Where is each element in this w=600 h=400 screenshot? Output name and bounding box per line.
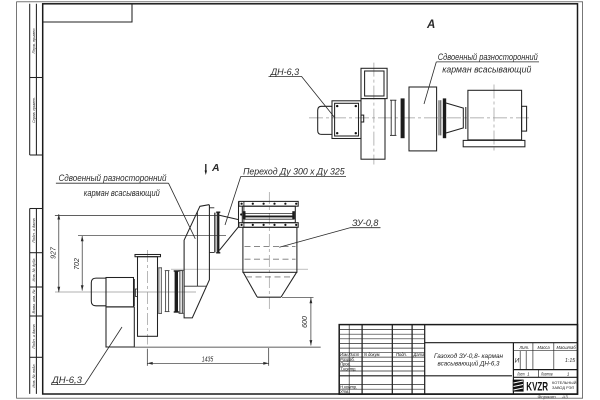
- svg-text:ДН-6,3: ДН-6,3: [270, 67, 299, 77]
- svg-text:Т.контр.: Т.контр.: [340, 366, 357, 371]
- svg-text:Лист: Лист: [516, 371, 525, 376]
- svg-text:Подп. и дата: Подп. и дата: [31, 323, 36, 348]
- svg-text:Подп. и дата: Подп. и дата: [31, 217, 36, 242]
- svg-text:Масштаб: Масштаб: [557, 345, 577, 350]
- svg-text:N докум.: N докум.: [364, 352, 381, 357]
- svg-text:А3: А3: [561, 394, 568, 399]
- svg-text:ЗУ-0,8: ЗУ-0,8: [352, 218, 378, 228]
- svg-text:1:15: 1:15: [565, 358, 575, 364]
- svg-text:1: 1: [567, 371, 569, 376]
- svg-text:А: А: [426, 19, 435, 31]
- svg-text:Подп.: Подп.: [396, 352, 407, 357]
- svg-text:Инв. № дубл.: Инв. № дубл.: [31, 258, 36, 282]
- svg-text:600: 600: [302, 316, 309, 328]
- svg-text:Перв. примен.: Перв. примен.: [31, 28, 36, 54]
- svg-text:Инв. № подл.: Инв. № подл.: [31, 363, 36, 387]
- svg-text:Газоход ЗУ-0,8- карман: Газоход ЗУ-0,8- карман: [434, 353, 504, 360]
- svg-text:927: 927: [51, 246, 58, 259]
- svg-text:Дата: Дата: [413, 352, 426, 357]
- svg-text:702: 702: [74, 258, 81, 270]
- svg-text:ЗАВОД РЭП: ЗАВОД РЭП: [552, 385, 574, 390]
- svg-text:Справ. примен.: Справ. примен.: [31, 97, 36, 123]
- svg-text:И: И: [515, 357, 520, 364]
- svg-text:Сдвоенный разносторонний: Сдвоенный разносторонний: [438, 52, 538, 62]
- svg-text:1435: 1435: [202, 356, 214, 363]
- svg-text:Утв.: Утв.: [340, 389, 349, 394]
- svg-text:всасывающий ДН-6,3: всасывающий ДН-6,3: [438, 360, 501, 367]
- svg-text:Формат: Формат: [538, 394, 556, 399]
- svg-text:карман всасывающий: карман всасывающий: [84, 188, 160, 198]
- svg-text:карман всасывающий: карман всасывающий: [442, 65, 531, 75]
- svg-text:Взам. инв. №: Взам. инв. №: [31, 289, 36, 314]
- svg-text:Сдвоенный разносторонний: Сдвоенный разносторонний: [59, 173, 167, 183]
- svg-text:KVZR: KVZR: [526, 380, 548, 394]
- svg-text:Переход Ду 300 х Ду 325: Переход Ду 300 х Ду 325: [243, 166, 345, 176]
- svg-text:Масса: Масса: [538, 345, 551, 350]
- svg-text:1: 1: [527, 371, 529, 376]
- svg-text:Листов: Листов: [540, 371, 553, 376]
- svg-text:Лит.: Лит.: [519, 345, 530, 350]
- svg-text:А: А: [211, 162, 220, 174]
